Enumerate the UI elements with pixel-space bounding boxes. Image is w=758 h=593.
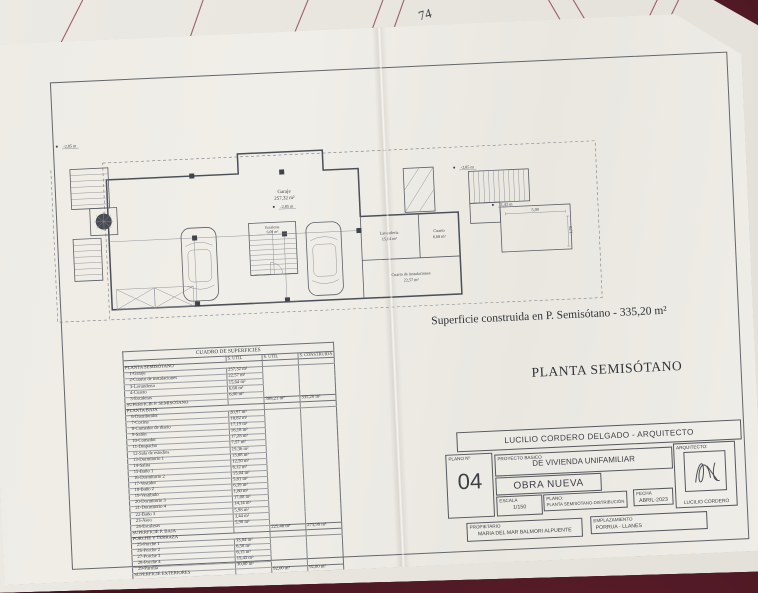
architect-signature xyxy=(683,450,727,492)
sheet-number: 04 xyxy=(447,468,493,496)
exterior-stair-right xyxy=(468,169,530,224)
floor-plan-drawing: Garaje 257,32 m² -2,85 m -2,85 m -2,85 m… xyxy=(46,97,615,327)
title-block: LUCILIO CORDERO DELGADO - ARQUITECTO PLA… xyxy=(444,419,751,551)
garage-beam-line xyxy=(109,230,361,241)
planter-tree-icon xyxy=(90,207,118,235)
garage-room-label: Garaje xyxy=(277,190,291,196)
scale-value: 1/150 xyxy=(498,504,542,512)
laundry-area-label: 15,64 m² xyxy=(382,236,398,243)
date-box: FECHA ABRIL-2023 xyxy=(633,488,674,507)
surface-table: CUADRO DE SUPERFICIES S. UTIL S. UTIL S.… xyxy=(122,342,344,581)
hatched-door-area xyxy=(403,167,435,212)
cuarto-room-label: Cuarto xyxy=(433,228,445,234)
garage-walls xyxy=(105,144,461,310)
terrace-height-dim: 1,79 xyxy=(568,226,574,234)
scale-box: ESCALA 1/150 xyxy=(496,494,543,516)
scale-label: ESCALA xyxy=(497,496,541,504)
sheet-number-label: PLANO Nº xyxy=(446,454,491,462)
garage-area-label: 257,32 m² xyxy=(274,195,295,202)
level-marker: -2,85 m xyxy=(56,143,79,150)
level-marker: -2,85 m xyxy=(273,203,296,210)
location-box: EMPLAZAMIENTO PORRUA - LLANES xyxy=(590,511,708,534)
architect-box: ARQUITECTO: LUCILIO CORDERO xyxy=(673,441,738,509)
plan-sheet: Garaje 257,32 m² -2,85 m -2,85 m -2,85 m… xyxy=(0,11,758,585)
project-box: PROYECTO BASICO DE VIVIENDA UNIFAMILIAR xyxy=(494,447,673,477)
installations-room-label: Cuarto de instalaciones xyxy=(391,270,431,277)
structural-columns xyxy=(189,166,364,307)
laundry-room-label: Lavandería xyxy=(380,230,399,236)
surface-table-body: CUADRO DE SUPERFICIES S. UTIL S. UTIL S.… xyxy=(123,342,344,580)
installations-area-label: 22,57 m² xyxy=(404,277,420,284)
plan-name-box: PLANO: PLANTA SEMISÓTANO-DISTRIBUCIÓN xyxy=(543,491,628,512)
sheet-number-box: PLANO Nº 04 xyxy=(445,453,495,519)
level-marker: -2,85 m xyxy=(453,164,476,171)
owner-box: PROPIETARIO MARIA DEL MAR BALMORI ALPUEN… xyxy=(466,518,583,542)
date-label: FECHA xyxy=(634,489,672,497)
dashed-boundary xyxy=(103,141,603,320)
architect-name: LUCILIO CORDERO xyxy=(677,499,737,507)
date-value: ABRIL-2023 xyxy=(634,497,672,505)
cuarto-area-label: 6,68 m² xyxy=(433,234,447,241)
photo-of-floor-plan: { "back_sheet": { "page_number": "74" },… xyxy=(0,0,758,564)
signature-icon xyxy=(684,451,724,489)
